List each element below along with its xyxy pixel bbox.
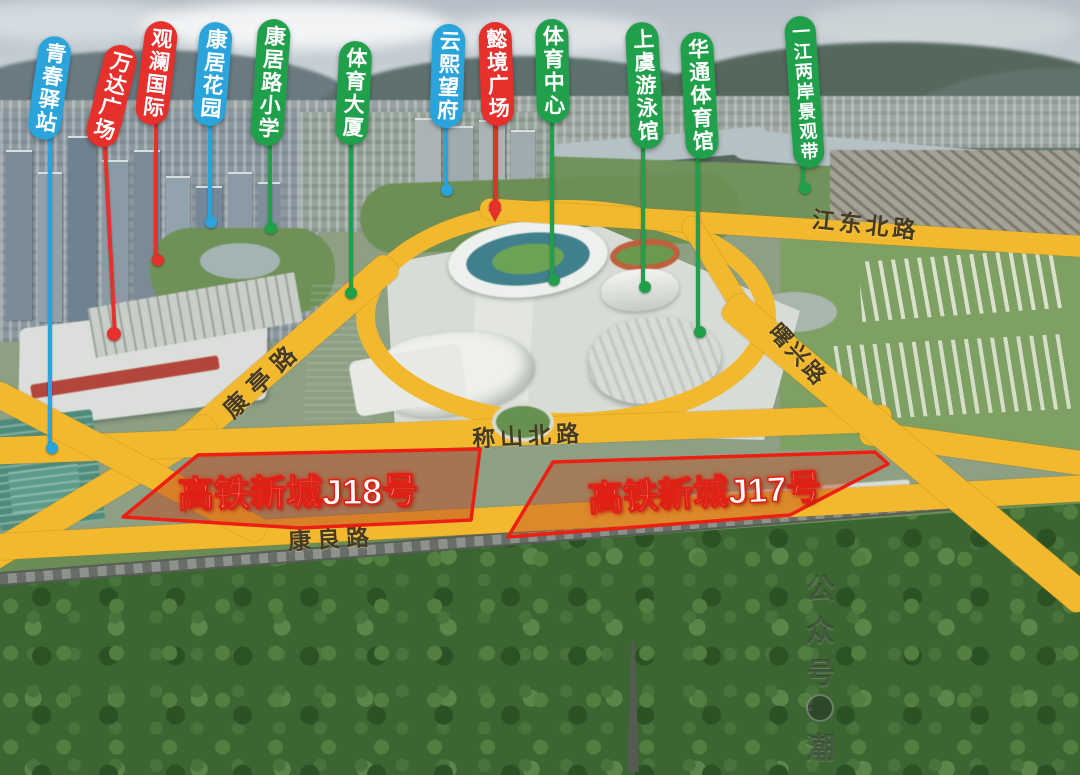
pin-label: 康居花园: [198, 27, 227, 120]
pin-dot: [694, 326, 706, 338]
pin-dot: [205, 216, 217, 228]
pin-label: 体育中心: [541, 25, 564, 117]
pin-dot: [107, 327, 121, 341]
pin-dot: [639, 281, 651, 293]
map-pin-yijing-guangchang: 懿境广场: [478, 21, 515, 126]
pin-dot: [46, 442, 58, 454]
pin-tail: [641, 145, 645, 287]
pin-tail: [208, 122, 212, 222]
pin-label: 懿境广场: [484, 28, 508, 121]
pin-label: 上虞游泳馆: [631, 28, 658, 144]
map-pin-tiyu-zhongxin: 体育中心: [535, 19, 570, 124]
pin-dot: [265, 222, 277, 234]
pin-label: 一江两岸景观带: [791, 22, 819, 163]
pin-dot: [799, 182, 811, 194]
pin-tail: [493, 124, 498, 204]
watermark-text: 公众号·潮上虞: [806, 566, 838, 775]
pin-tail: [444, 126, 448, 192]
pin-tail: [550, 121, 554, 280]
map-pin-huatong-tiyuguan: 华通体育馆: [680, 31, 720, 160]
pin-label: 青春驿站: [33, 41, 67, 135]
map-pin-shangyu-youyongguan: 上虞游泳馆: [625, 21, 665, 150]
pin-label: 体育大厦: [341, 47, 367, 140]
pin-tail: [349, 143, 353, 293]
pin-arrow: [488, 209, 502, 222]
pin-tail: [268, 142, 272, 230]
pin-tail: [48, 136, 52, 448]
aerial-map-image: 江东北路 曙兴路 康亭路 称山北路 康良路 高铁新城J18号 高铁新城J17号 …: [0, 0, 1080, 775]
pin-tail: [696, 155, 700, 332]
pin-dot: [152, 254, 164, 266]
map-pin-yunxi-wangfu: 云熙望府: [429, 23, 466, 128]
pin-label: 康居路小学: [256, 24, 285, 140]
pin-tail: [154, 122, 158, 260]
pin-dot: [548, 274, 560, 286]
pin-label: 华通体育馆: [686, 38, 713, 154]
map-pin-tiyu-dasha: 体育大厦: [334, 40, 372, 146]
pin-label: 云熙望府: [435, 30, 459, 123]
pin-dot: [345, 287, 357, 299]
pin-label: 观澜国际: [140, 26, 172, 120]
pin-dot: [441, 184, 453, 196]
plot-label-j18: 高铁新城J18号: [178, 462, 419, 518]
